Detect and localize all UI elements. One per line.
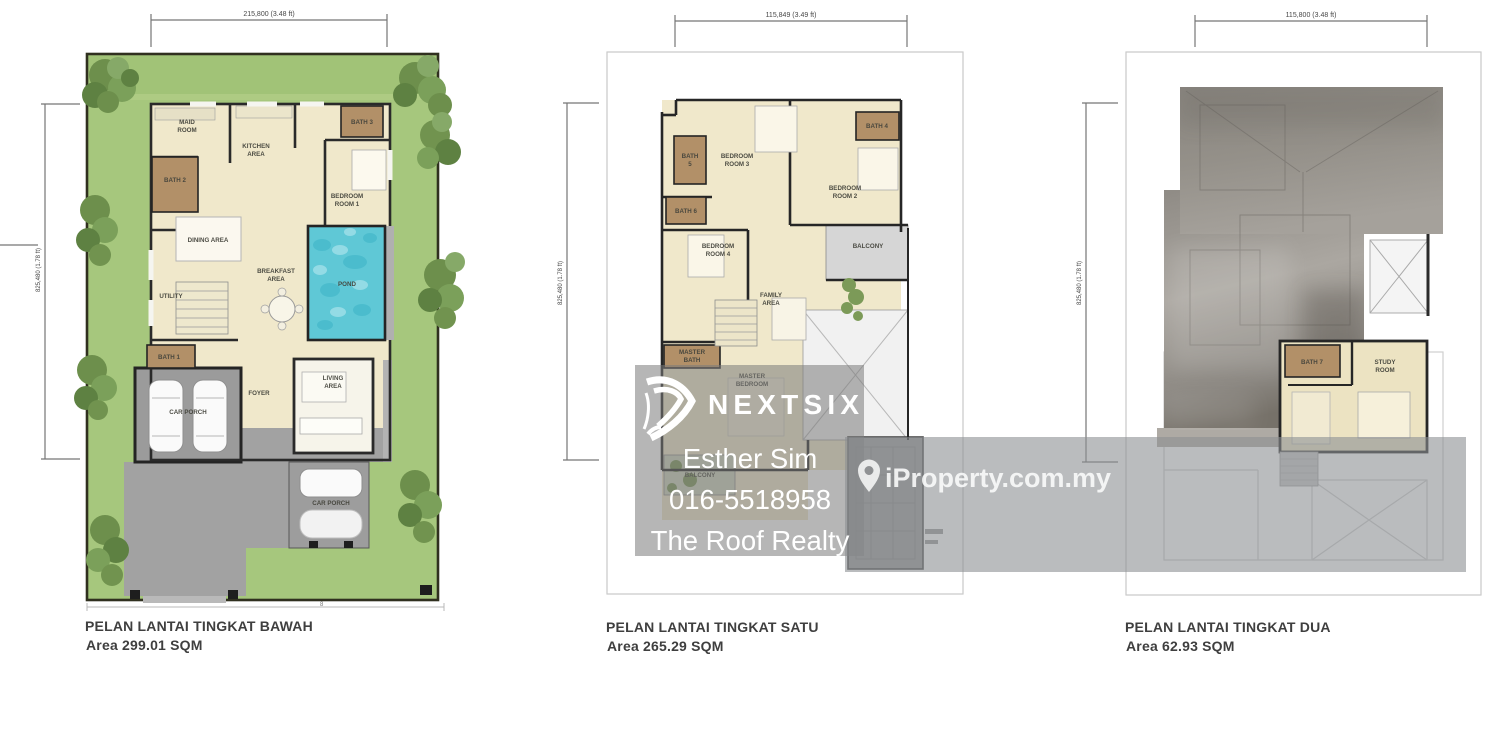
svg-text:BATH 4: BATH 4 [866,123,888,130]
svg-text:Area 62.93 SQM: Area 62.93 SQM [1126,638,1235,654]
svg-text:FOYER: FOYER [248,390,270,397]
svg-text:016-5518958: 016-5518958 [669,484,831,515]
svg-text:BALCONY: BALCONY [853,243,884,250]
svg-text:MAID: MAID [179,119,195,126]
svg-text:AREA: AREA [267,276,285,283]
svg-text:The Roof Realty: The Roof Realty [651,525,850,556]
svg-text:BATH: BATH [682,153,699,160]
svg-text:ROOM 1: ROOM 1 [335,201,360,208]
svg-text:Area 299.01 SQM: Area 299.01 SQM [86,637,203,653]
svg-text:BATH: BATH [684,357,701,364]
svg-text:ROOM: ROOM [1375,367,1394,374]
svg-text:ROOM: ROOM [177,127,196,134]
svg-text:LIVING: LIVING [323,375,344,382]
svg-text:BEDROOM: BEDROOM [702,243,734,250]
svg-text:STUDY: STUDY [1375,359,1397,366]
svg-text:ROOM 4: ROOM 4 [706,251,731,258]
svg-text:825,480 (1.78 ft): 825,480 (1.78 ft) [558,261,564,305]
svg-text:DINING AREA: DINING AREA [188,237,229,244]
svg-text:NEXTSIX: NEXTSIX [708,389,864,420]
svg-text:BATH 6: BATH 6 [675,208,697,215]
svg-text:POND: POND [338,281,356,288]
svg-text:5: 5 [688,161,692,168]
svg-text:iProperty.com.my: iProperty.com.my [885,463,1111,493]
svg-text:BREAKFAST: BREAKFAST [257,268,295,275]
svg-text:BEDROOM: BEDROOM [721,153,753,160]
svg-text:UTILITY: UTILITY [159,293,183,300]
svg-text:BATH 7: BATH 7 [1301,359,1323,366]
svg-text:PELAN LANTAI TINGKAT BAWAH: PELAN LANTAI TINGKAT BAWAH [85,618,313,634]
svg-text:PELAN LANTAI TINGKAT DUA: PELAN LANTAI TINGKAT DUA [1125,619,1331,635]
svg-text:BEDROOM: BEDROOM [829,185,861,192]
svg-text:215,800 (3.48 ft): 215,800 (3.48 ft) [243,11,294,18]
svg-text:BATH 2: BATH 2 [164,177,186,184]
svg-text:825,480 (1.78 ft): 825,480 (1.78 ft) [36,248,42,292]
svg-text:Area 265.29 SQM: Area 265.29 SQM [607,638,724,654]
svg-text:MASTER: MASTER [679,349,706,356]
svg-text:Esther Sim: Esther Sim [683,443,817,474]
svg-text:KITCHEN: KITCHEN [242,143,270,150]
svg-text:ROOM 2: ROOM 2 [833,193,858,200]
svg-text:825,480 (1.78 ft): 825,480 (1.78 ft) [1077,261,1083,305]
svg-text:AREA: AREA [762,300,780,307]
svg-text:BEDROOM: BEDROOM [331,193,363,200]
svg-text:BATH 1: BATH 1 [158,354,180,361]
svg-text:CAR PORCH: CAR PORCH [169,409,207,416]
svg-text:FAMILY: FAMILY [760,292,783,299]
svg-text:AREA: AREA [324,383,342,390]
svg-text:CAR PORCH: CAR PORCH [312,500,350,507]
svg-text:115,800 (3.48 ft): 115,800 (3.48 ft) [1286,12,1337,19]
svg-text:AREA: AREA [247,151,265,158]
svg-text:ROOM 3: ROOM 3 [725,161,750,168]
svg-text:PELAN LANTAI TINGKAT SATU: PELAN LANTAI TINGKAT SATU [606,619,819,635]
svg-text:115,849 (3.49 ft): 115,849 (3.49 ft) [766,12,817,19]
svg-text:BATH 3: BATH 3 [351,119,373,126]
